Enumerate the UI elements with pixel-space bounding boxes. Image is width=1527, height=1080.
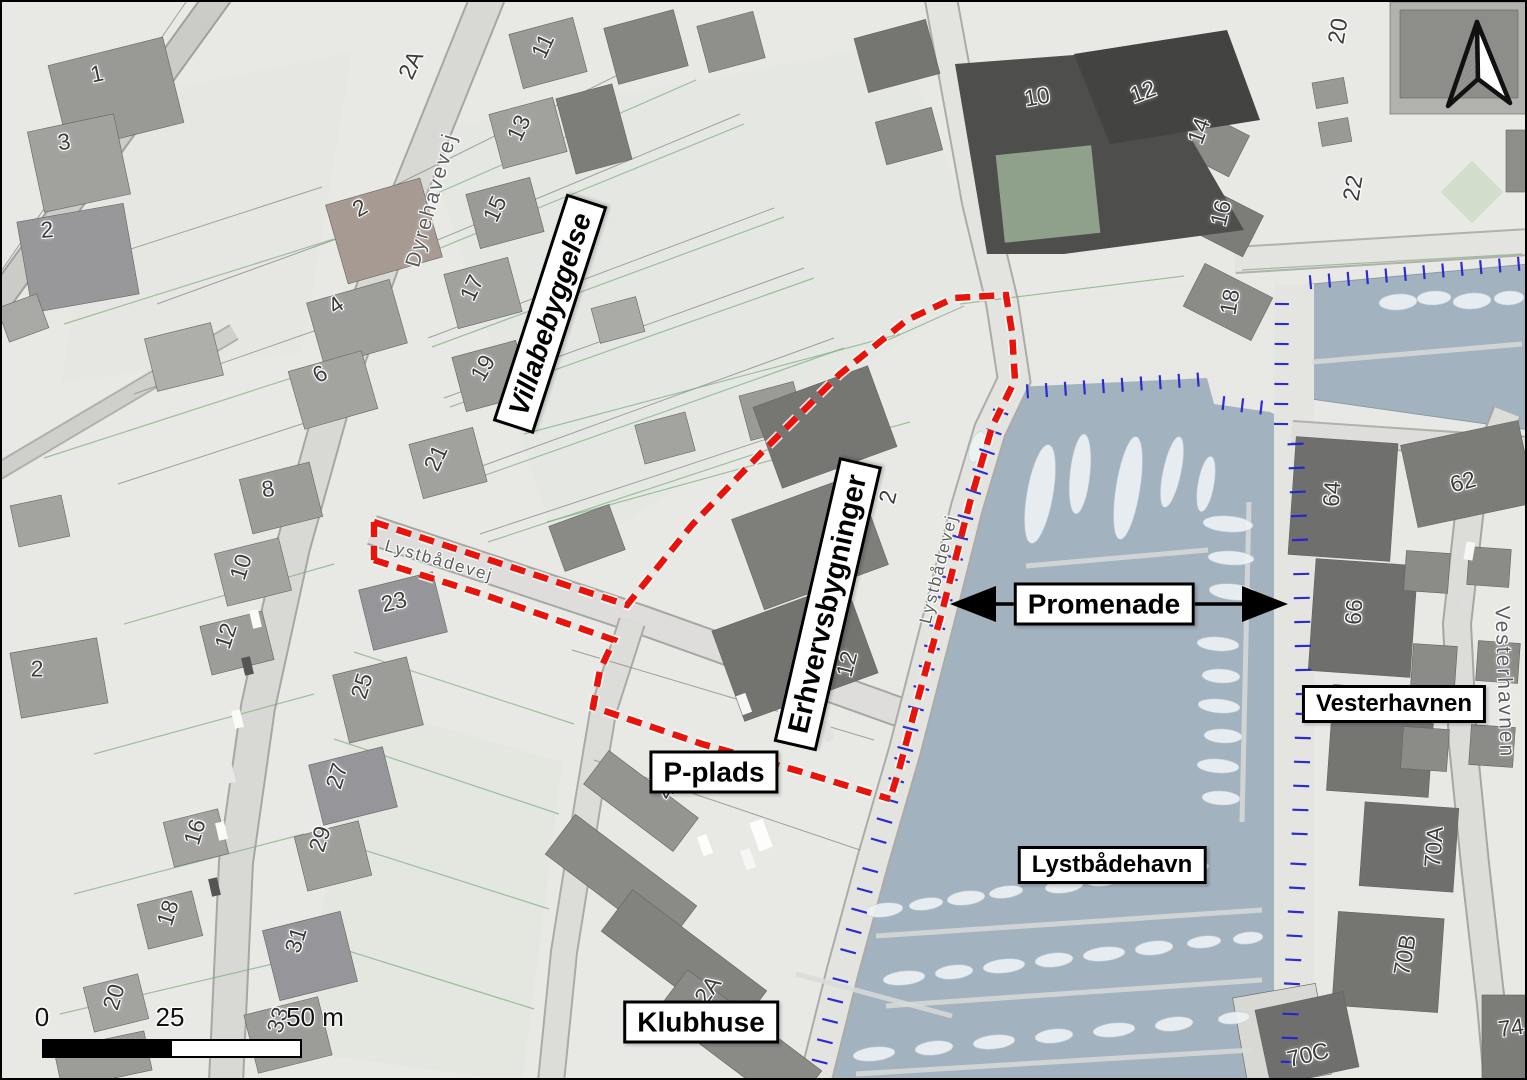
scalebar-black-segment bbox=[44, 1041, 172, 1056]
scalebar-end-label: 50 m bbox=[286, 1002, 344, 1033]
label-promenade: Promenade bbox=[1014, 583, 1195, 626]
scalebar bbox=[42, 1039, 302, 1058]
label-klubhuse: Klubhuse bbox=[623, 1001, 779, 1044]
label-vesterhavnen-box: Vesterhavnen bbox=[1302, 685, 1486, 723]
scalebar-start-label: 0 bbox=[35, 1002, 49, 1033]
scalebar-mid-label: 25 bbox=[156, 1002, 185, 1033]
aerial-basemap bbox=[2, 2, 1527, 1080]
scalebar-white-segment bbox=[172, 1041, 300, 1056]
harbor-local-plan-map: DyrehavevejLystbådevejLystbådevejVesterh… bbox=[0, 0, 1527, 1080]
label-p-plads: P-plads bbox=[649, 751, 778, 794]
label-lystbaadehavn: Lystbådehavn bbox=[1018, 846, 1207, 884]
